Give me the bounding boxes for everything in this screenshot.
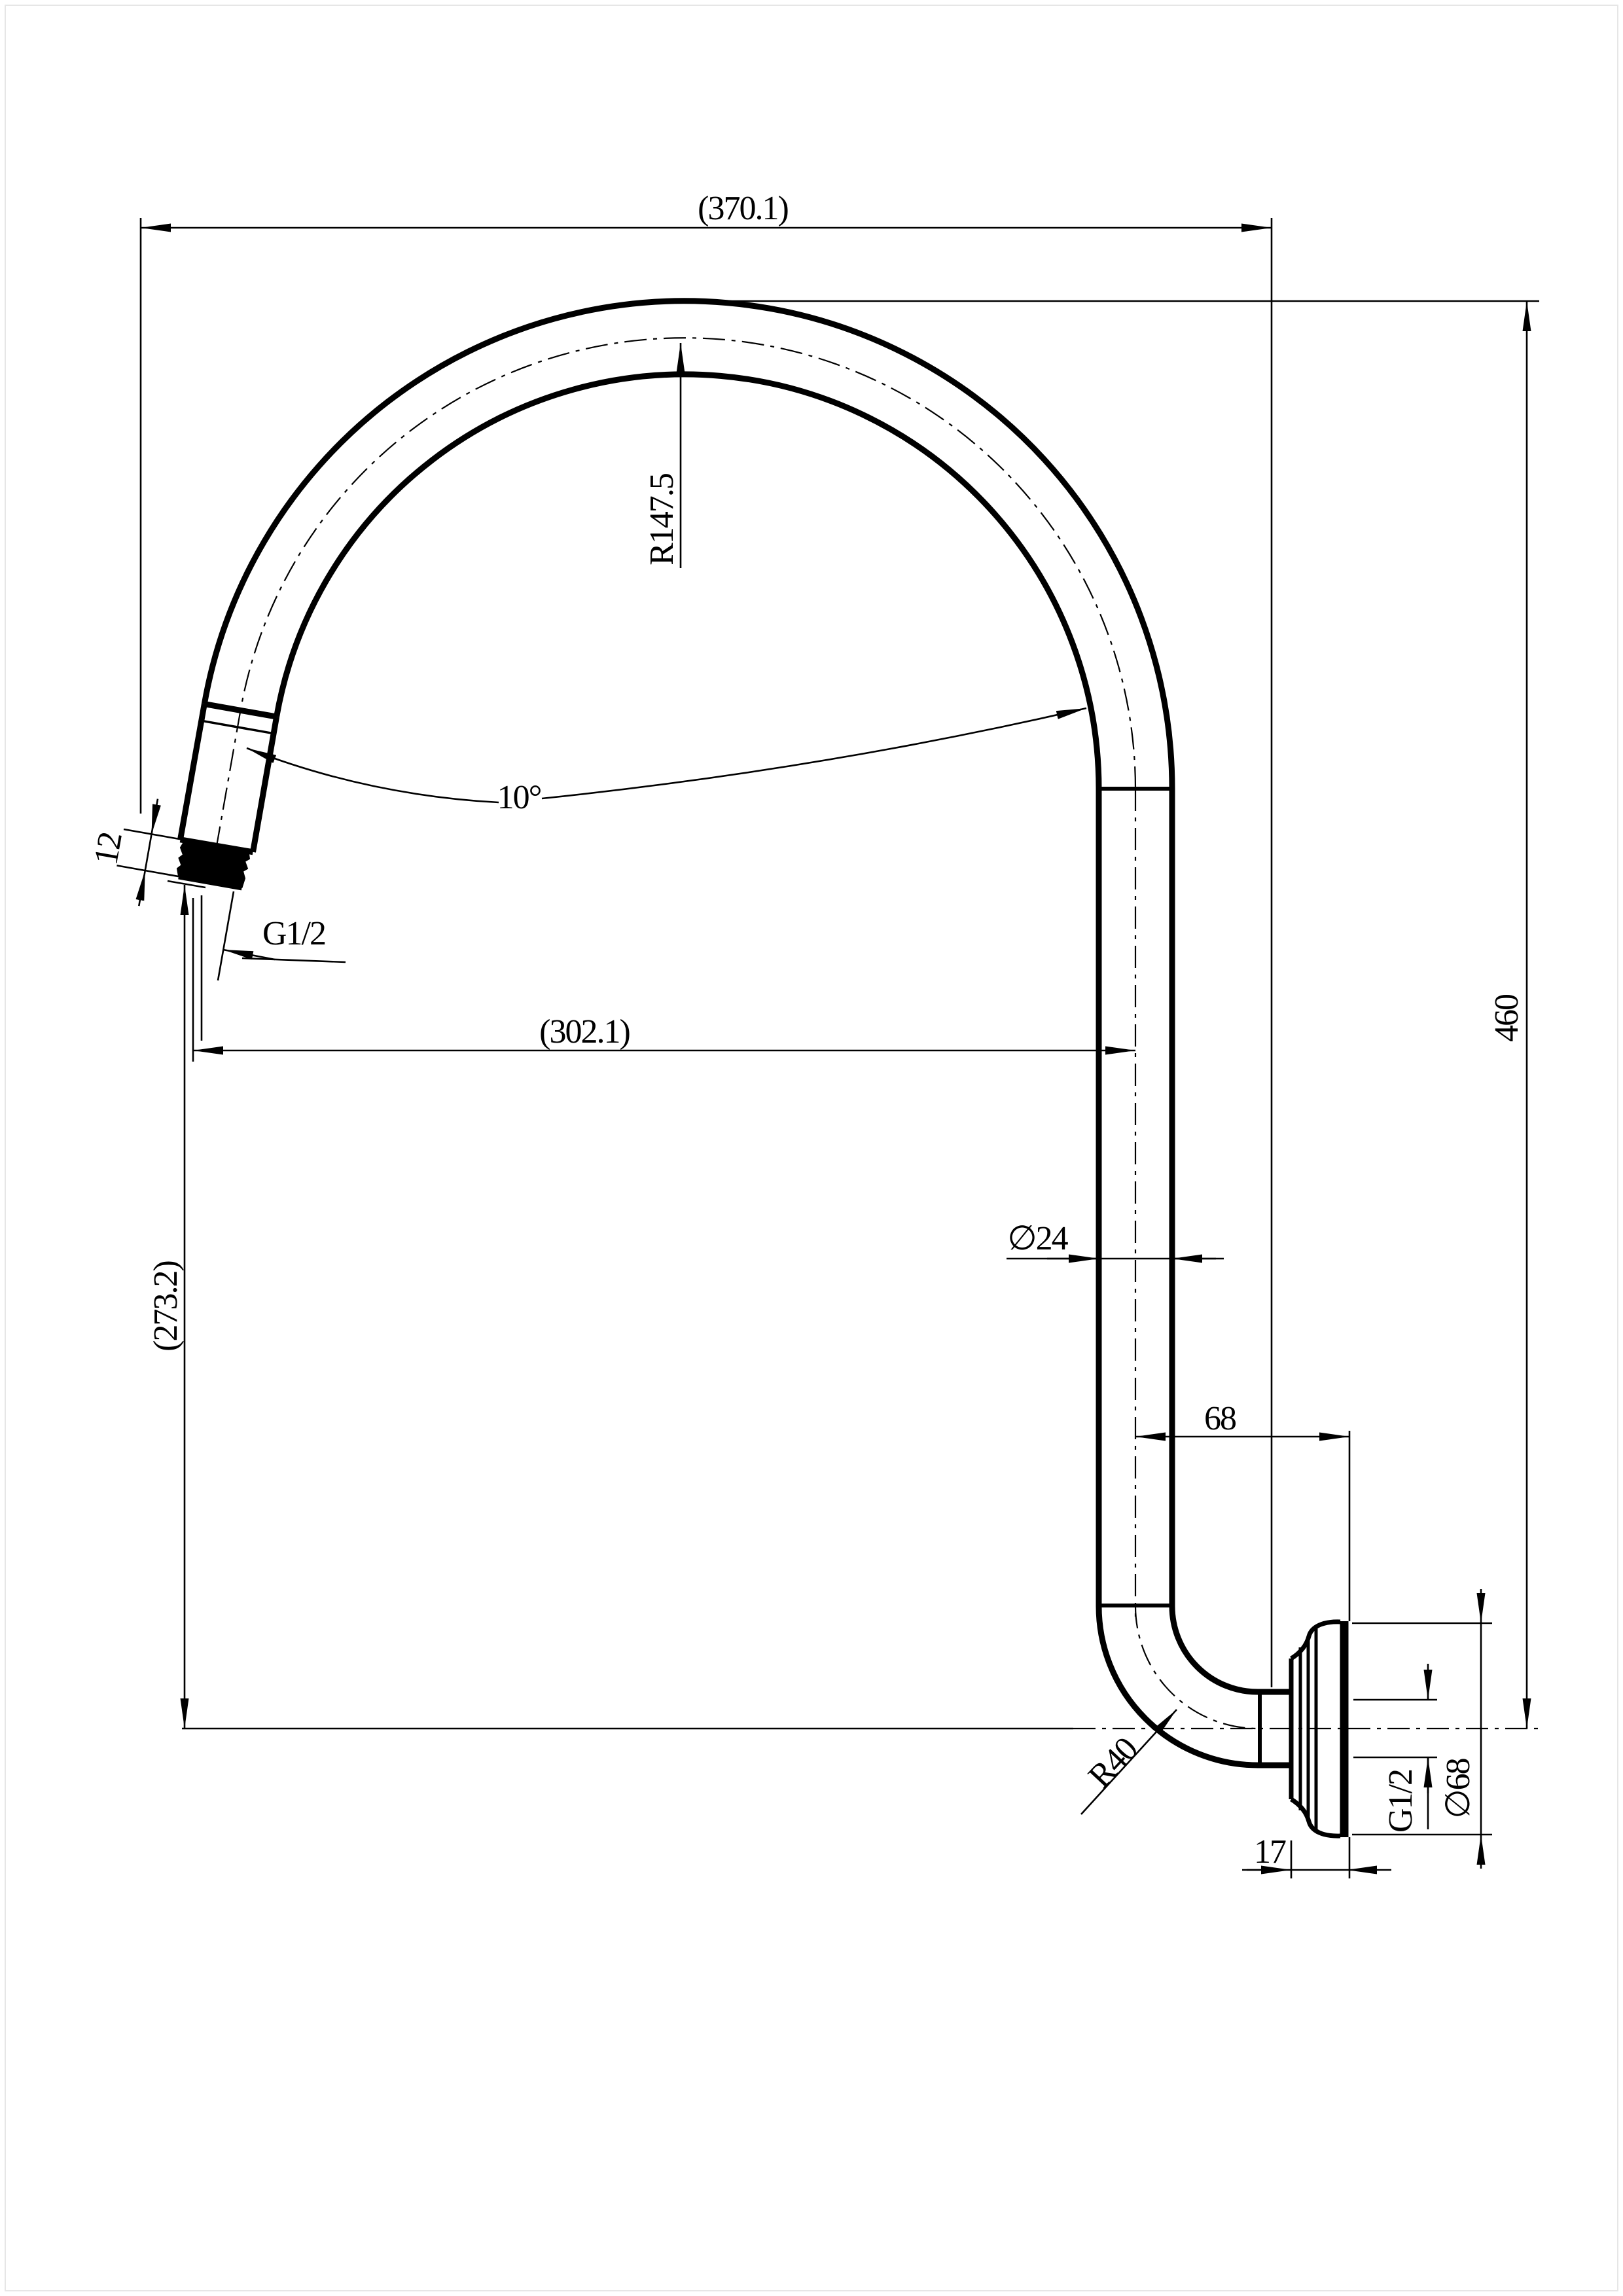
label-spout-drop: (273.2): [149, 1261, 183, 1352]
underline-outlet-thread: [242, 958, 346, 962]
ext-thread-length-upper: [124, 829, 196, 842]
label-thread-length: 12: [89, 831, 128, 867]
arrow-thread-length-upper: [152, 799, 158, 834]
arrow-thread-length-lower: [139, 870, 145, 906]
ext-outlet-thread-axis: [218, 891, 234, 980]
label-outlet-angle: 10°: [497, 781, 541, 815]
spout-collar-inner-wall: [253, 717, 277, 852]
drawing-page: (370.1) 460 (302.1) (273.2) R147.5 10° 1…: [0, 0, 1623, 2296]
elbow-inner-wall: [1172, 1606, 1258, 1692]
label-overall-height: 460: [1490, 995, 1524, 1042]
label-inlet-thread: G1/2: [1384, 1770, 1418, 1833]
page-frame: [5, 5, 1618, 2291]
label-flange-diameter: ∅68: [1442, 1759, 1476, 1818]
bend-centerline: [241, 338, 1136, 789]
label-bend-radius: R147.5: [645, 474, 679, 565]
dim-thread-length-mid: [145, 834, 152, 870]
technical-drawing-canvas: [0, 0, 1623, 2296]
angle-arc-right: [542, 708, 1086, 798]
spout-collar-outer-wall: [181, 704, 205, 840]
label-wall-offset: 68: [1204, 1402, 1236, 1436]
label-pipe-diameter: ∅24: [1007, 1222, 1067, 1256]
label-outlet-thread: G1/2: [262, 917, 325, 951]
angle-arc-left: [247, 748, 499, 802]
label-overall-width: (370.1): [698, 192, 788, 226]
label-flange-depth: 17: [1254, 1835, 1285, 1869]
label-spout-reach: (302.1): [539, 1015, 630, 1049]
bend-inner-wall: [277, 374, 1099, 789]
